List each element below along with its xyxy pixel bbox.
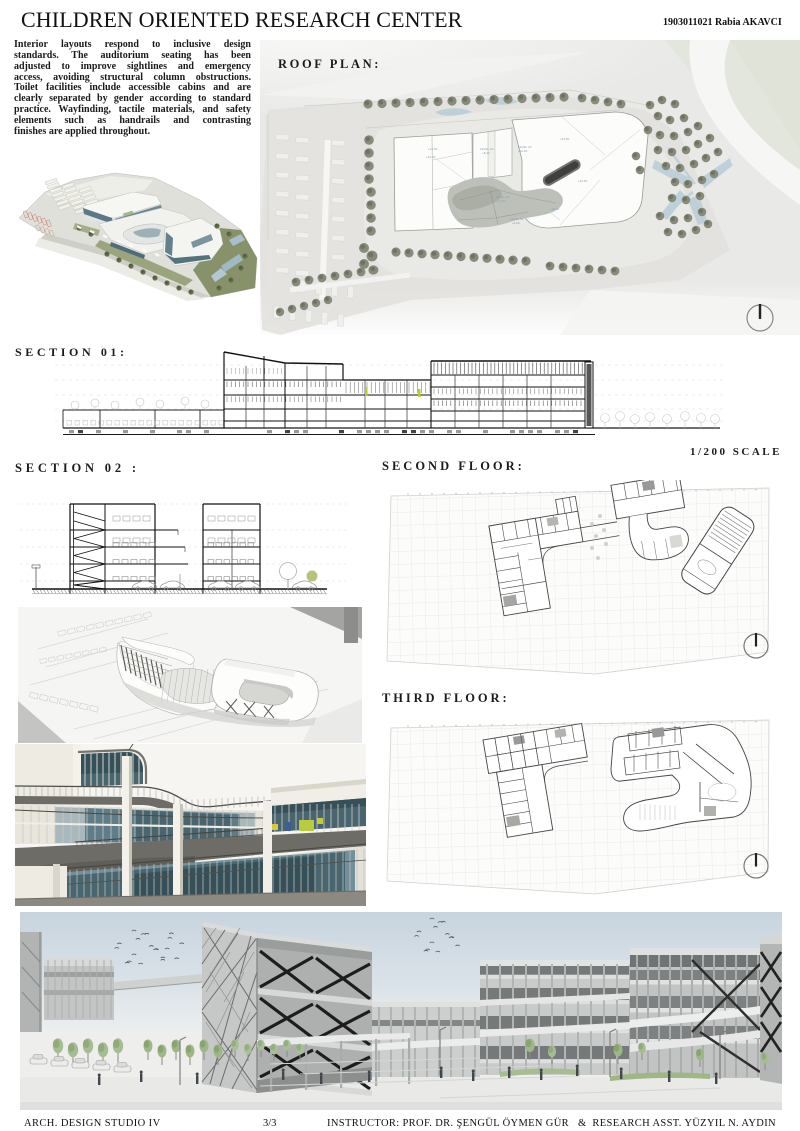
svg-text:+14.50: +14.50 (578, 179, 588, 183)
svg-text:+14.50: +14.50 (428, 147, 438, 151)
svg-text:+12.00: +12.00 (518, 149, 528, 153)
svg-text:+8.14: +8.14 (482, 151, 490, 155)
svg-text:+14.00: +14.00 (426, 155, 436, 159)
svg-text:+0.00: +0.00 (498, 199, 506, 203)
svg-text:+4.00: +4.00 (512, 221, 520, 225)
svg-text:+14.50: +14.50 (560, 137, 570, 141)
svg-text:+14.00: +14.00 (550, 207, 560, 211)
